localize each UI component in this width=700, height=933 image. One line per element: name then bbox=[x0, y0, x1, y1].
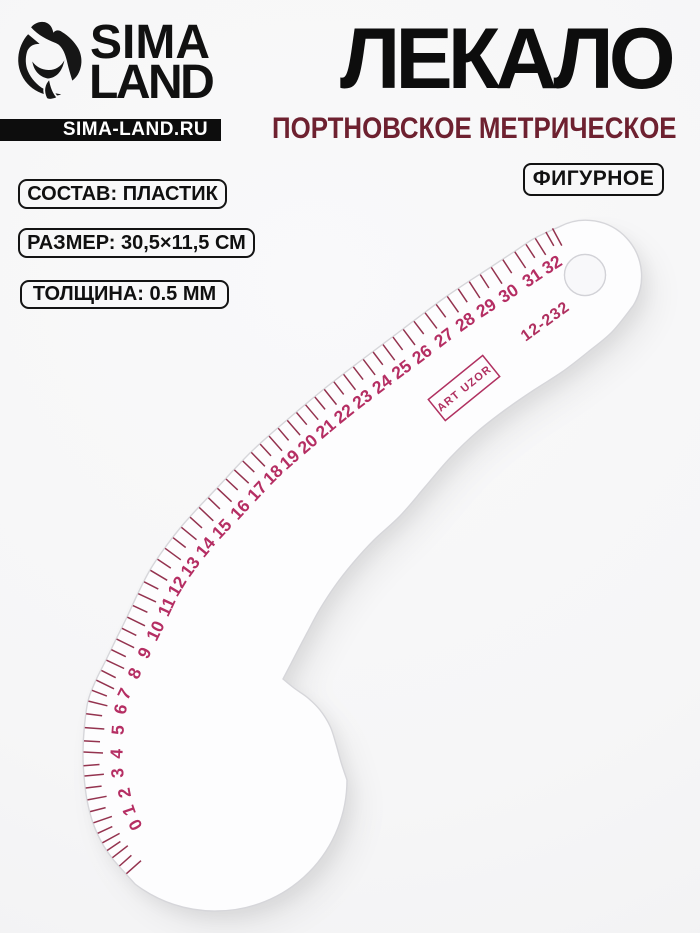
svg-text:4: 4 bbox=[106, 748, 126, 759]
svg-text:5: 5 bbox=[107, 724, 128, 735]
svg-text:3: 3 bbox=[107, 767, 128, 779]
